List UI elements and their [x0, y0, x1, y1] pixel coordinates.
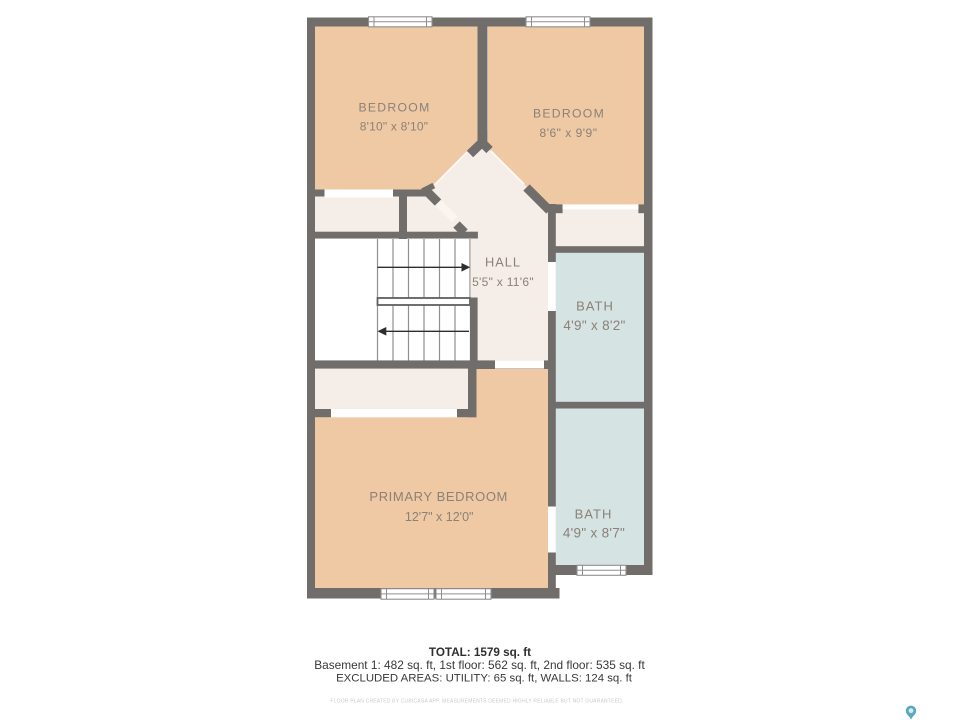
- svg-text:EXCLUDED AREAS: UTILITY: 65 sq: EXCLUDED AREAS: UTILITY: 65 sq. ft, WALL…: [336, 673, 633, 685]
- svg-text:HALL: HALL: [485, 254, 521, 269]
- svg-text:BEDROOM: BEDROOM: [533, 107, 605, 121]
- svg-text:8'6" x 9'9": 8'6" x 9'9": [540, 126, 598, 140]
- svg-text:BEDROOM: BEDROOM: [358, 100, 430, 114]
- svg-text:BATH: BATH: [575, 506, 613, 521]
- svg-text:4'9" x 8'2": 4'9" x 8'2": [563, 318, 625, 333]
- svg-text:Basement 1: 482 sq. ft, 1st fl: Basement 1: 482 sq. ft, 1st floor: 562 s…: [314, 658, 645, 672]
- svg-text:PRIMARY BEDROOM: PRIMARY BEDROOM: [369, 489, 508, 504]
- svg-text:FLOOR PLAN CREATED BY CUBICASA: FLOOR PLAN CREATED BY CUBICASA APP. MEAS…: [330, 699, 623, 705]
- svg-text:8'10" x 8'10": 8'10" x 8'10": [360, 120, 428, 134]
- svg-text:4'9" x 8'7": 4'9" x 8'7": [563, 525, 625, 540]
- svg-text:12'7" x 12'0": 12'7" x 12'0": [405, 510, 474, 524]
- svg-text:5'5" x 11'6": 5'5" x 11'6": [472, 275, 534, 289]
- svg-text:BATH: BATH: [576, 299, 614, 314]
